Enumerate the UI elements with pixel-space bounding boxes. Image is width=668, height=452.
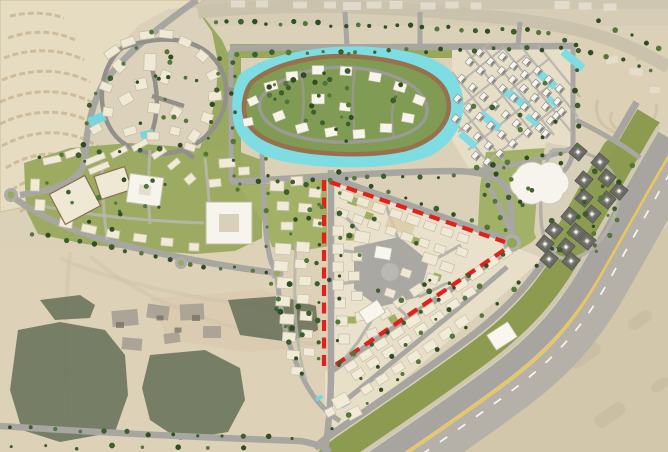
- building-park-curved: [510, 162, 569, 204]
- triangle-plaza-inner: [381, 263, 399, 281]
- masterplan-map-svg: [0, 0, 668, 452]
- masterplan-screenshot: [0, 0, 668, 452]
